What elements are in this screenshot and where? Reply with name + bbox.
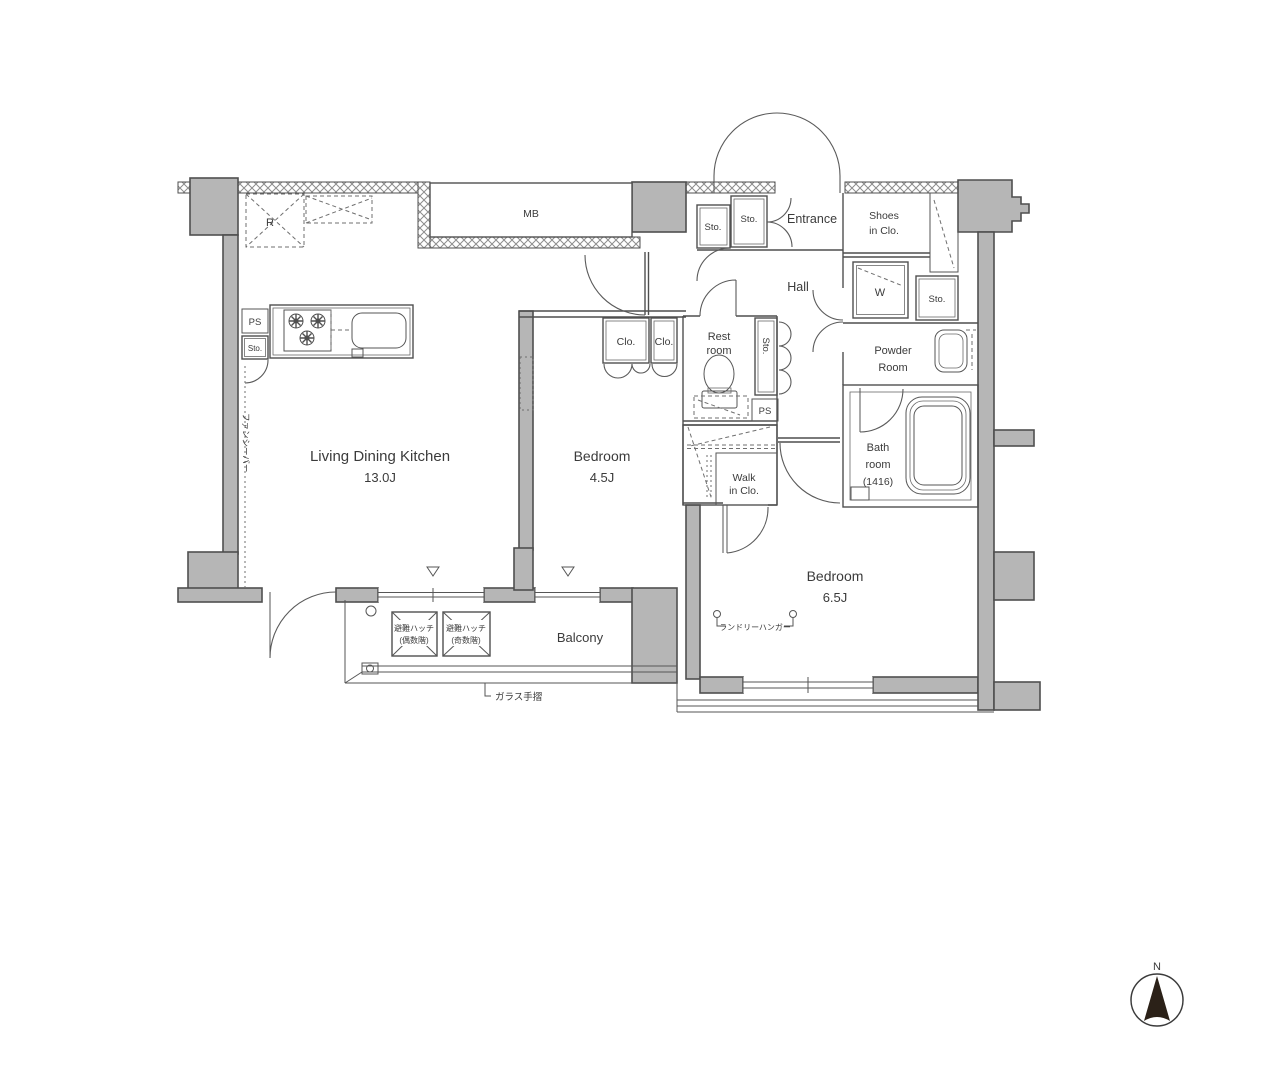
counter-dash — [331, 310, 352, 351]
wall-divider-step — [514, 548, 533, 590]
washer-diagonal — [858, 268, 903, 286]
floor-plan-page: Living Dining Kitchen 13.0J Bedroom 4.5J… — [0, 0, 1280, 1075]
wall-left-step — [188, 552, 238, 590]
window-bedroom1 — [535, 588, 600, 602]
wall-right — [978, 232, 994, 710]
label-sto-entrance-2: Sto. — [741, 214, 758, 225]
label-washer: W — [875, 287, 886, 299]
room-label-bedroom2: Bedroom — [807, 568, 864, 584]
wall-seg-c — [600, 588, 633, 602]
label-hatch-odd-2: (奇数階) — [451, 635, 481, 645]
toilet-tank — [702, 391, 737, 408]
room-label-entrance: Entrance — [787, 212, 837, 226]
bath-room — [843, 385, 978, 507]
room-label-hall: Hall — [787, 280, 809, 294]
label-clo-1: Clo. — [617, 336, 636, 348]
label-hatch-even-1: 避難ハッチ — [394, 623, 434, 633]
room-size-bedroom1: 4.5J — [590, 470, 615, 485]
wall-bedroom2-bottom-right — [873, 677, 978, 693]
room-label-shoes-1: Shoes — [869, 210, 899, 222]
balcony-drain-icon — [366, 606, 376, 616]
bathtub-icon — [906, 397, 970, 494]
label-mb: MB — [523, 208, 539, 220]
entrance-door-arc — [714, 113, 840, 193]
toilet-icon — [704, 355, 734, 393]
label-hatch-even-2: (偶数階) — [399, 635, 429, 645]
floor-plan-drawing: Living Dining Kitchen 13.0J Bedroom 4.5J… — [0, 0, 1280, 1075]
window-marker-2 — [562, 567, 574, 576]
kitchen-small-box — [352, 349, 363, 357]
restroom-door-arc — [700, 280, 736, 316]
label-ps-hall: PS — [759, 406, 772, 417]
wall-balcony-block — [632, 588, 677, 683]
label-hatch-odd-1: 避難ハッチ — [446, 623, 486, 633]
label-sto-entrance-1: Sto. — [705, 222, 722, 233]
kitchen-sto-door-arc — [245, 360, 268, 383]
room-label-bedroom1: Bedroom — [574, 448, 631, 464]
room-label-bath-1: Bath — [867, 442, 890, 454]
label-glass-rail: ガラス手摺 — [495, 691, 542, 703]
solid-walls — [178, 178, 1040, 710]
closet-door-arcs — [604, 364, 677, 378]
label-r: R — [266, 217, 274, 229]
room-label-restroom-1: Rest — [708, 331, 731, 343]
window-bedroom2 — [743, 677, 873, 693]
room-label-powder-1: Powder — [874, 345, 912, 357]
room-label-restroom-2: room — [706, 345, 731, 357]
label-ps-kitchen: PS — [249, 317, 262, 328]
label-sto-restroom: Sto. — [760, 338, 771, 355]
wall-left — [223, 235, 238, 554]
label-side-note: ファンシーバー — [241, 413, 251, 472]
room-label-wic-2: in Clo. — [729, 485, 759, 497]
wic-door-arc — [727, 507, 768, 553]
ldk-balcony-door-arc — [270, 592, 336, 658]
hall-strip-door-arc — [780, 443, 840, 503]
room-label-wic-1: Walk — [733, 472, 757, 484]
sto-bifold-arcs — [779, 322, 791, 394]
shoes-cabinet — [930, 193, 958, 272]
wall-bedroom2-bottom-left — [700, 677, 743, 693]
hall-strip-door-leaf — [778, 438, 840, 442]
glass-rail-leader — [485, 683, 491, 696]
room-label-powder-2: Room — [878, 362, 907, 374]
wall-seg-a — [336, 588, 378, 602]
washer-closet-door-arcs — [813, 290, 843, 352]
stove-burners-icon — [289, 314, 325, 345]
washbasin-icon — [935, 330, 967, 372]
wall-right-stub-lower — [994, 552, 1034, 600]
label-laundry-hanger: ランドリーハンガー — [719, 622, 791, 632]
wall-right-stub-upper — [994, 430, 1034, 446]
room-size-bedroom2: 6.5J — [823, 590, 848, 605]
evacuation-hatch-even — [392, 612, 437, 656]
wall-bottom-left — [178, 588, 262, 602]
window-marker-1 — [427, 567, 439, 576]
kitchen — [242, 194, 413, 588]
wall-divider — [519, 311, 533, 550]
wall-bedroom2-left — [686, 505, 700, 679]
label-sto-right: Sto. — [929, 294, 946, 305]
label-sto-kitchen: Sto. — [248, 344, 262, 353]
kitchen-sink-icon — [352, 313, 406, 348]
bath-door-arc — [860, 389, 903, 432]
compass-icon — [1131, 974, 1183, 1026]
bath-counter — [851, 487, 869, 500]
room-label-balcony: Balcony — [557, 630, 604, 645]
compass-north-label: N — [1153, 961, 1161, 973]
window-ldk — [378, 588, 484, 602]
corridor-door-arc — [585, 255, 645, 315]
label-clo-2: Clo. — [655, 336, 674, 348]
wall-right-foot — [994, 682, 1040, 710]
wall-pillar-top-center — [632, 182, 686, 232]
room-label-bath-2: room — [865, 459, 890, 471]
room-label-bath-3: (1416) — [863, 476, 893, 488]
shoes-cabinet-diagonal — [934, 200, 954, 268]
room-label-ldk: Living Dining Kitchen — [310, 448, 450, 465]
evacuation-hatch-odd — [443, 612, 490, 656]
entrance-area — [697, 113, 840, 281]
room-label-shoes-2: in Clo. — [869, 225, 899, 237]
refrigerator-space — [246, 194, 372, 247]
entrance-sto-door-arc-1 — [697, 248, 730, 281]
room-size-ldk: 13.0J — [364, 470, 396, 485]
interior-walls — [519, 250, 843, 410]
wall-block-top-right — [958, 180, 1029, 232]
bedroom1-closets — [603, 318, 677, 378]
wall-pillar-top-left — [190, 178, 238, 235]
wic-door-leaf — [723, 505, 727, 553]
